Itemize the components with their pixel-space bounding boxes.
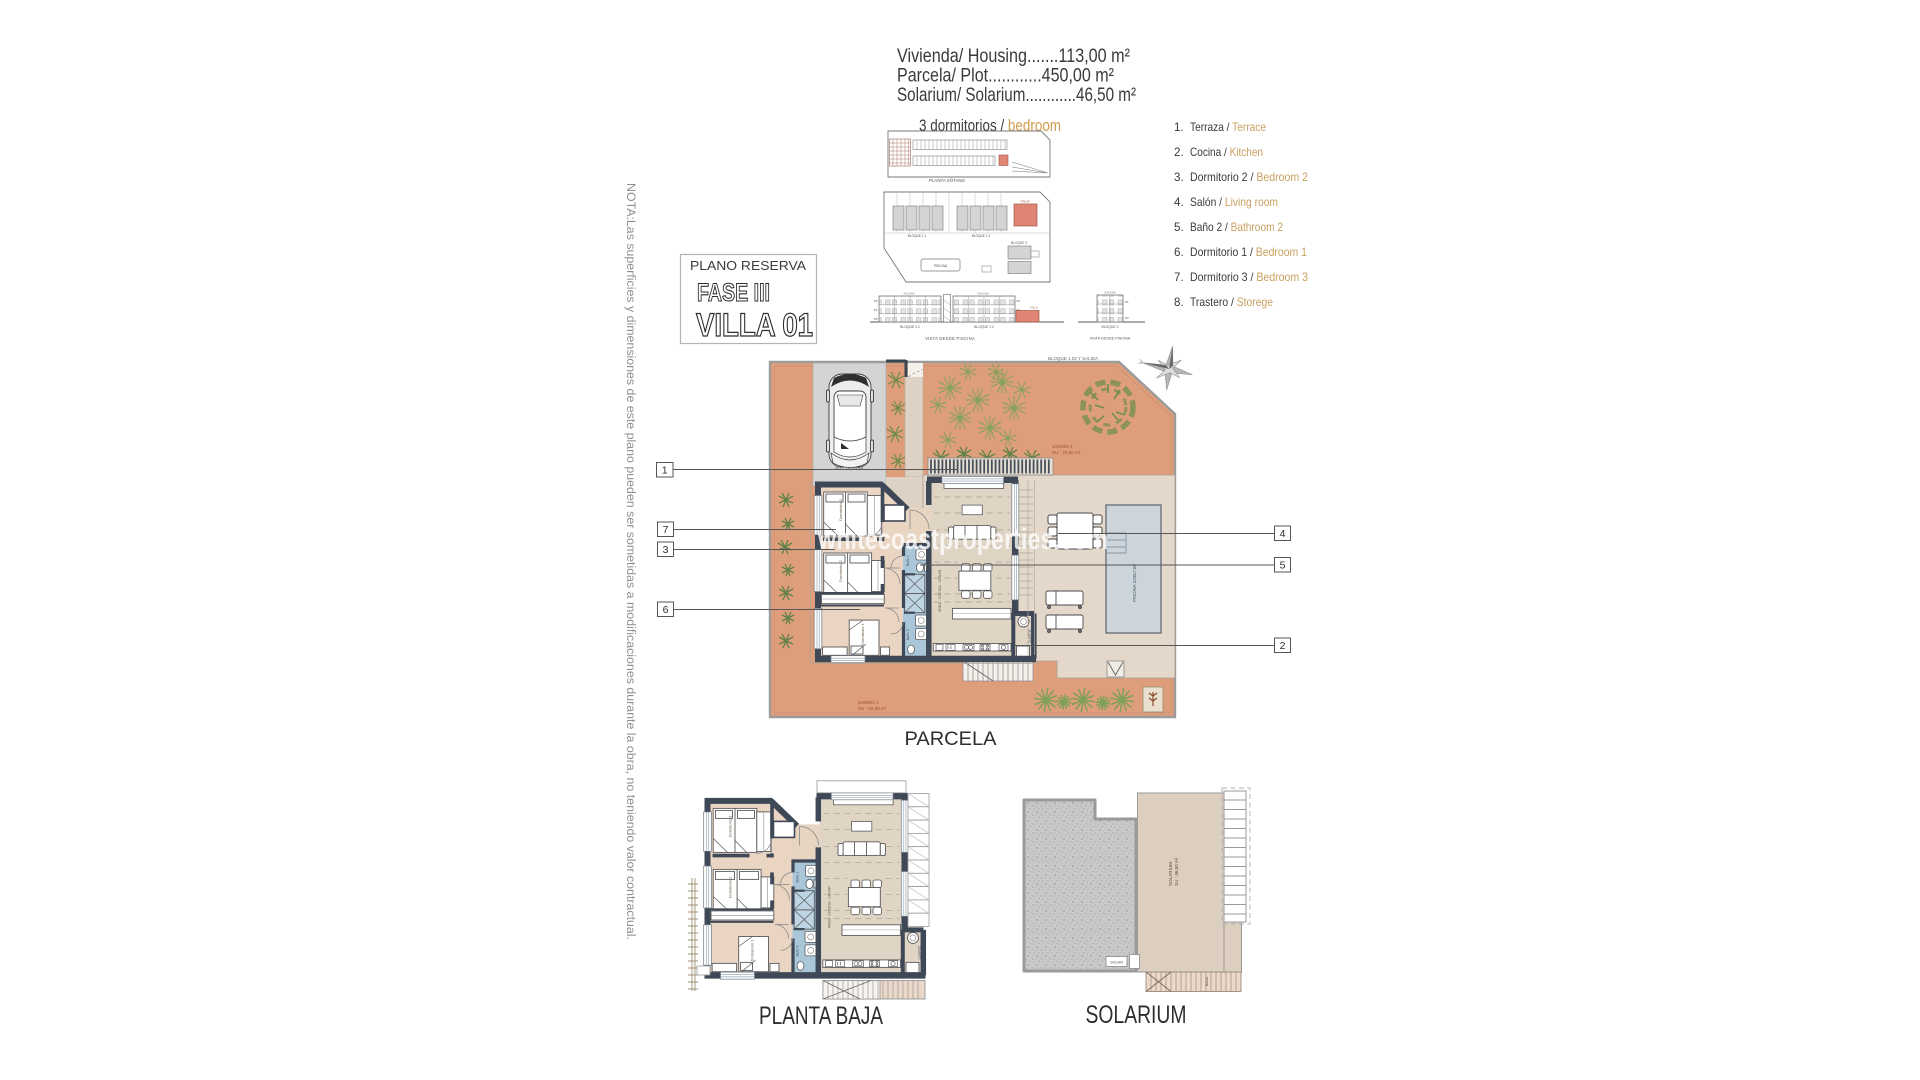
svg-text:Dormitorio 1 / Bedroom 1: Dormitorio 1 / Bedroom 1 [1190, 246, 1307, 259]
svg-text:5.: 5. [1174, 221, 1184, 234]
svg-text:8.: 8. [1174, 296, 1184, 309]
svg-text:3: 3 [663, 544, 669, 556]
svg-text:BAJA: BAJA [1205, 976, 1209, 986]
svg-text:SOLANA: SOLANA [903, 292, 914, 296]
svg-text:SU : 92,00 m²: SU : 92,00 m² [858, 706, 887, 711]
svg-text:VISTA DESDE PISCINA: VISTA DESDE PISCINA [1090, 337, 1131, 341]
svg-text:SU : 75,00 m²: SU : 75,00 m² [1052, 450, 1081, 455]
svg-text:SOLANA: SOLANA [977, 292, 988, 296]
svg-text:2: 2 [1280, 640, 1286, 652]
svg-text:Cocina / Kitchen: Cocina / Kitchen [1190, 146, 1263, 159]
svg-text:P2: P2 [874, 299, 878, 303]
svg-text:BLOQUE 1.1: BLOQUE 1.1 [900, 325, 920, 329]
svg-text:SU : 46,50 m²: SU : 46,50 m² [1174, 857, 1179, 886]
svg-text:VILLA 01: VILLA 01 [696, 307, 813, 343]
svg-text:SOLARIUM: SOLARIUM [1086, 1001, 1187, 1029]
svg-text:P2: P2 [1017, 299, 1021, 303]
svg-text:Dormitorio 2 / Bedroom 2: Dormitorio 2 / Bedroom 2 [1190, 171, 1308, 184]
svg-text:5: 5 [1280, 559, 1286, 571]
svg-text:1: 1 [662, 464, 668, 476]
svg-text:P0: P0 [1125, 316, 1129, 320]
svg-text:JARDIN 2: JARDIN 2 [1052, 444, 1073, 449]
svg-text:2.: 2. [1174, 146, 1184, 159]
svg-text:BLOQUE 1.2: BLOQUE 1.2 [972, 234, 991, 238]
svg-text:PARCELA: PARCELA [905, 728, 997, 750]
svg-text:PLANTA SÓTANO: PLANTA SÓTANO [929, 178, 966, 183]
svg-text:SOLARIUM: SOLARIUM [1168, 862, 1173, 886]
svg-text:BLOQUE 2: BLOQUE 2 [1102, 325, 1119, 329]
svg-text:PISCINA 3,00x7,00: PISCINA 3,00x7,00 [1132, 564, 1137, 602]
svg-text:BLOQUE 1.1: BLOQUE 1.1 [908, 234, 927, 238]
svg-text:P1: P1 [874, 308, 878, 312]
svg-text:P1: P1 [1125, 300, 1129, 304]
svg-text:VILLA: VILLA [1030, 306, 1038, 310]
svg-text:VILLA: VILLA [1020, 200, 1030, 204]
svg-text:1.: 1. [1174, 121, 1184, 134]
svg-text:PLANO RESERVA: PLANO RESERVA [690, 258, 806, 273]
svg-text:SOLANA: SOLANA [1104, 291, 1115, 295]
svg-text:NOTA:Las superficies y dimensi: NOTA:Las superficies y dimensiones de es… [624, 183, 636, 940]
svg-text:Trastero / Storege: Trastero / Storege [1190, 296, 1273, 309]
svg-text:BLOQUE 1.2: BLOQUE 1.2 [974, 325, 994, 329]
svg-text:Baño 2 / Bathroom 2: Baño 2 / Bathroom 2 [1190, 221, 1283, 234]
svg-text:SOLAR: SOLAR [1110, 961, 1123, 965]
svg-text:Terraza / Terrace: Terraza / Terrace [1190, 121, 1266, 134]
svg-text:7: 7 [663, 524, 669, 536]
svg-text:7.: 7. [1174, 271, 1184, 284]
svg-text:6.: 6. [1174, 246, 1184, 259]
svg-text:whitecoastproperties.com: whitecoastproperties.com [817, 523, 1108, 556]
svg-text:6: 6 [663, 604, 669, 616]
svg-text:BLOQUE 1.02 Y SALIDA: BLOQUE 1.02 Y SALIDA [1048, 356, 1098, 361]
svg-text:FASE III: FASE III [697, 279, 770, 307]
svg-text:Dormitorio 3 / Bedroom 3: Dormitorio 3 / Bedroom 3 [1190, 271, 1308, 284]
svg-text:4.: 4. [1174, 196, 1184, 209]
svg-text:BLOQUE 2: BLOQUE 2 [1011, 241, 1027, 245]
svg-text:PISCINA: PISCINA [934, 264, 948, 268]
svg-text:Solarium/ Solarium............: Solarium/ Solarium............46,50 m² [897, 84, 1136, 106]
svg-text:VISTA DESDE PISCINA: VISTA DESDE PISCINA [925, 336, 975, 341]
svg-text:P0: P0 [874, 317, 878, 321]
svg-text:3.: 3. [1174, 171, 1184, 184]
svg-text:JARDIN 1: JARDIN 1 [858, 700, 879, 705]
svg-text:PLANTA BAJA: PLANTA BAJA [759, 1002, 883, 1030]
svg-text:4: 4 [1280, 528, 1286, 540]
svg-text:Salón / Living room: Salón / Living room [1190, 196, 1278, 209]
